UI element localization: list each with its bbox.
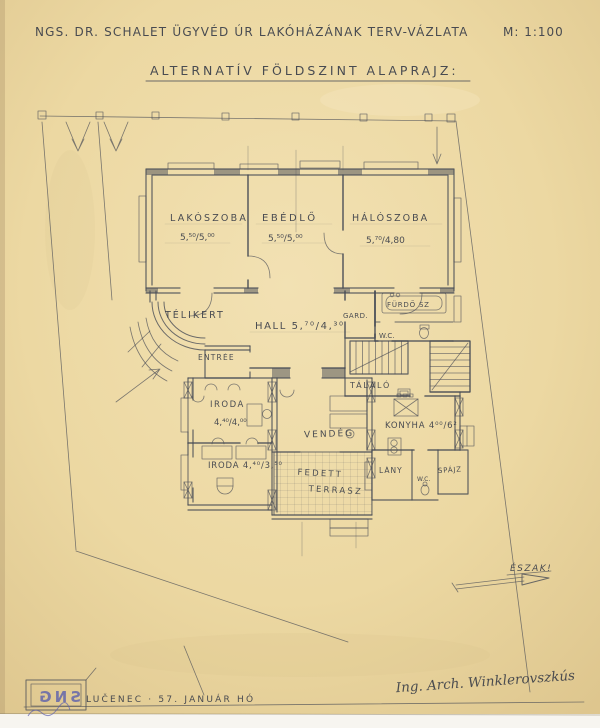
drawing-canvas: NGS. DR. SCHALET ÜGYVÉD ÚR LAKÓHÁZÁNAK T…: [0, 0, 600, 728]
place-date: LUČENEC · 57. JANUÁR HÓ: [86, 693, 255, 705]
room-label-haloszoba: HÁLÓSZOBA: [352, 212, 429, 224]
room-label-spajz: SPÁJZ: [438, 464, 462, 475]
room-label-lakoszoba: LAKÓSZOBA: [170, 212, 248, 224]
room-dims-haloszoba: 5,⁷⁰/4,80: [366, 236, 405, 246]
room-dims-iroda1: 4,⁴⁰/4,⁰⁰: [214, 418, 247, 428]
room-label-gard: GARD.: [343, 312, 368, 320]
room-label-furdo: FÜRDŐ SZ: [387, 300, 430, 309]
title-line2: ALTERNATÍV FÖLDSZINT ALAPRAJZ:: [150, 62, 459, 78]
room-label-lany: LÁNY: [379, 466, 403, 475]
scanned-drawing: NGS. DR. SCHALET ÜGYVÉD ÚR LAKÓHÁZÁNAK T…: [0, 0, 600, 728]
room-label-wc-main: W.C.: [379, 332, 394, 340]
north-label: ÉSZAK!: [510, 562, 552, 574]
room-label-talalo: TÁLALÓ: [349, 379, 391, 390]
room-label-ebedlo: EBÉDLŐ: [262, 210, 318, 224]
room-dims-ebedlo: 5,⁵⁰/5,⁰⁰: [268, 234, 303, 244]
paper-sheet: [0, 0, 600, 728]
room-dims-lakoszoba: 5,⁵⁰/5,⁰⁰: [180, 233, 215, 243]
title-scale: M: 1:100: [503, 25, 564, 39]
room-label-entree: ENTRÉE: [198, 353, 235, 362]
room-label-iroda2: IRODA 4,⁴⁰/3,⁵⁰: [208, 461, 283, 471]
room-label-telikert: TÉLIKERT: [164, 309, 225, 321]
stamp-text: SNG: [36, 688, 81, 706]
room-label-iroda1: IRODA: [210, 400, 245, 410]
room-label-hall: HALL 5,⁷⁰/4,³⁰: [255, 321, 345, 332]
title-line1: NGS. DR. SCHALET ÜGYVÉD ÚR LAKÓHÁZÁNAK T…: [35, 23, 469, 39]
room-label-wc-small: W.C.: [417, 476, 430, 483]
room-label-konyha: KONYHA 4⁰⁰/6²: [385, 421, 458, 431]
